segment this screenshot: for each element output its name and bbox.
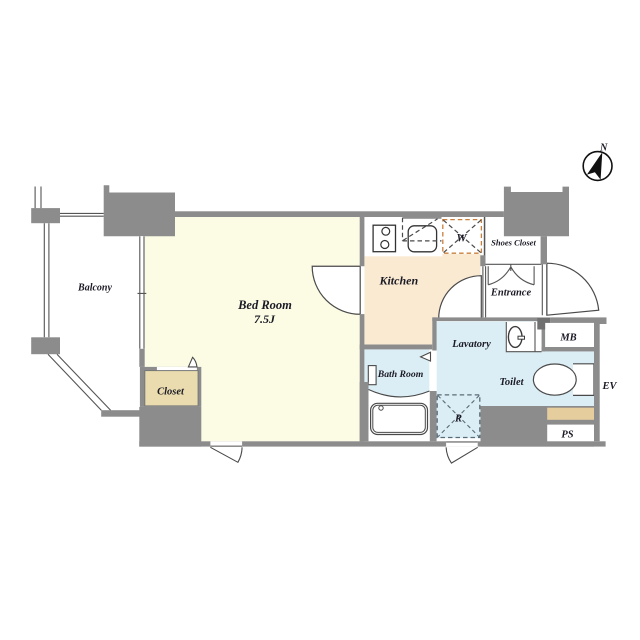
svg-text:Toilet: Toilet	[499, 377, 524, 388]
svg-text:7.5J: 7.5J	[254, 312, 276, 326]
svg-text:Bath Room: Bath Room	[377, 369, 424, 380]
svg-text:Entrance: Entrance	[490, 288, 532, 299]
svg-text:Lavatory: Lavatory	[451, 339, 491, 350]
svg-text:W: W	[456, 233, 467, 245]
svg-text:N: N	[599, 143, 608, 154]
svg-text:Shoes Closet: Shoes Closet	[491, 238, 536, 248]
svg-text:EV: EV	[601, 381, 617, 392]
svg-text:Balcony: Balcony	[77, 283, 112, 294]
svg-text:Kitchen: Kitchen	[378, 274, 418, 288]
svg-text:PS: PS	[561, 430, 573, 441]
svg-text:R: R	[454, 414, 462, 425]
svg-text:MB: MB	[559, 333, 576, 344]
svg-text:Bed Room: Bed Room	[237, 298, 292, 312]
svg-text:Closet: Closet	[157, 387, 185, 398]
